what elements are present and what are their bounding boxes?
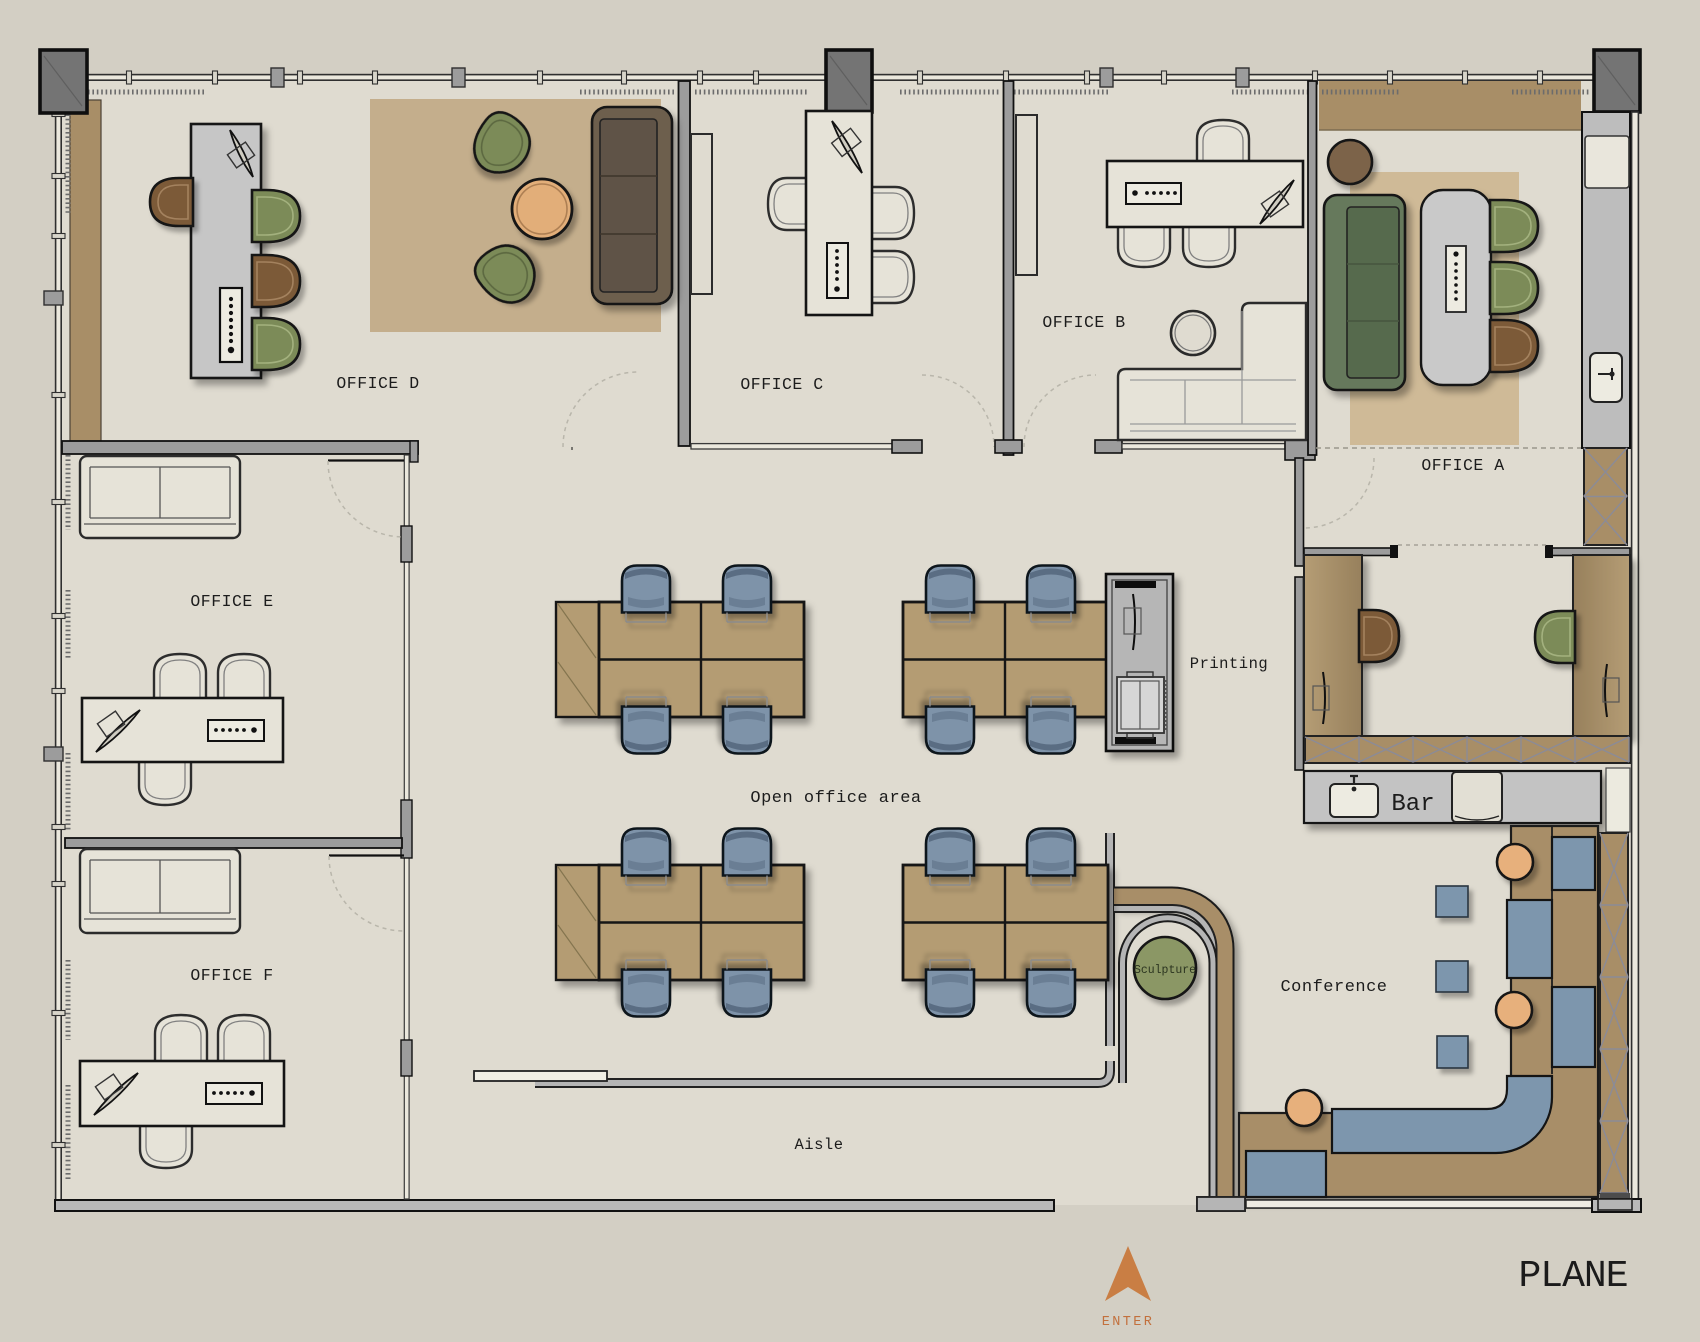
svg-text:Open office area: Open office area	[750, 789, 921, 808]
svg-text:Bar: Bar	[1391, 791, 1434, 818]
svg-text:PLANE: PLANE	[1518, 1255, 1627, 1298]
svg-text:OFFICE E: OFFICE E	[190, 592, 273, 611]
svg-text:Conference: Conference	[1280, 978, 1387, 997]
svg-text:ENTER: ENTER	[1102, 1315, 1155, 1330]
svg-text:Printing: Printing	[1190, 655, 1268, 673]
svg-text:OFFICE A: OFFICE A	[1421, 456, 1504, 475]
svg-text:Aisle: Aisle	[794, 1136, 843, 1154]
svg-text:OFFICE D: OFFICE D	[336, 374, 419, 393]
svg-text:OFFICE F: OFFICE F	[190, 966, 273, 985]
svg-text:OFFICE C: OFFICE C	[740, 375, 823, 394]
svg-text:Sculpture: Sculpture	[1134, 964, 1196, 977]
svg-text:OFFICE B: OFFICE B	[1042, 313, 1125, 332]
